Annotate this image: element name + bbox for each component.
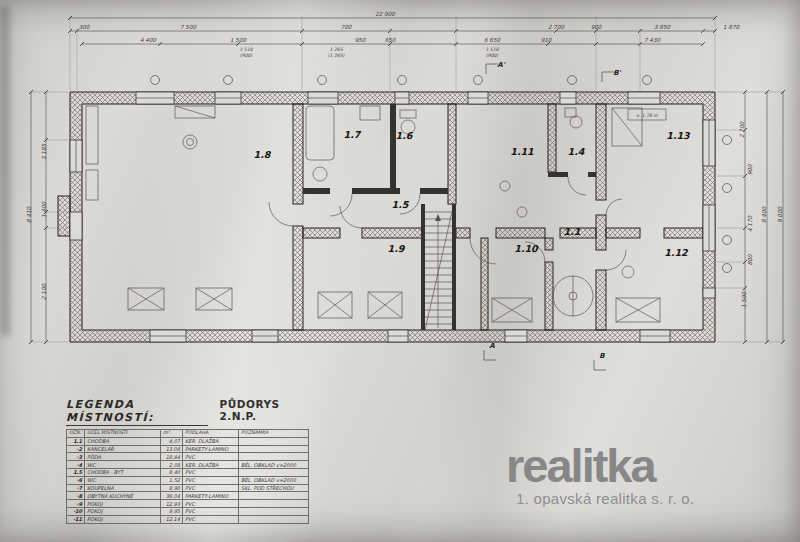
cell-ozn: ·9 <box>67 500 85 508</box>
cell-podlaha: PVC <box>183 484 239 492</box>
cell-pozn <box>239 500 309 508</box>
svg-text:650: 650 <box>385 37 396 43</box>
legend-row: 1.1CHODBA4,07KER. DLAŽBA <box>67 437 309 445</box>
cell-podlaha: PVC <box>183 515 239 523</box>
svg-text:7 430: 7 430 <box>644 37 660 43</box>
dim-overall-width: 22 900 <box>375 11 395 17</box>
cell-ucel: KOUPELNA <box>85 484 161 492</box>
svg-text:2 100: 2 100 <box>41 284 47 300</box>
svg-text:(900): (900) <box>486 53 499 58</box>
cell-ucel: POKOJ <box>85 507 161 515</box>
legend-row: ·8OBYTNÁ KUCHYNĚ36,04PARKETY-LAMINO <box>67 492 309 500</box>
washbasin <box>313 167 327 181</box>
cell-pozn <box>239 492 309 500</box>
svg-text:1 400: 1 400 <box>41 202 47 218</box>
cell-podlaha: PVC <box>183 500 239 508</box>
cell-podlaha: PVC <box>183 468 239 476</box>
legend-row: ·3PŮDA18,44PVC <box>67 453 309 461</box>
window <box>150 330 186 342</box>
legend-row: ·2KANCELÁŘ13,08PARKETY-LAMINO <box>67 445 309 453</box>
legend-title-row: LEGENDA MÍSTNOSTÍ: PŮDORYS 2.N.P. <box>66 398 308 426</box>
cell-m2: 9,95 <box>161 507 183 515</box>
cell-podlaha: PVC <box>183 476 239 484</box>
logo-tagline: 1. opavská realitka s. r. o. <box>516 490 694 507</box>
height-note: v. 1,78 m <box>636 113 658 118</box>
cell-ucel: CHODBA - BYT <box>85 468 161 476</box>
cell-m2: 12,93 <box>161 500 183 508</box>
svg-text:1 510: 1 510 <box>485 47 499 52</box>
cell-ozn: 1.1 <box>67 437 85 445</box>
legend-row: ·7KOUPELNA8,90PVCSKL. POD STŘECHOU <box>67 484 309 492</box>
cell-ozn: ·8 <box>67 492 85 500</box>
room-label-1-12: 1.12 <box>664 247 689 258</box>
cell-pozn: SKL. POD STŘECHOU <box>239 484 309 492</box>
svg-text:9 000: 9 000 <box>777 207 783 223</box>
dimension-texts: 22 900 300 7 500 700 2 700 900 3 850 1 8… <box>26 11 783 308</box>
position-marks <box>151 76 732 273</box>
window <box>136 92 174 104</box>
svg-text:950: 950 <box>355 37 366 43</box>
cell-ozn: ·3 <box>67 453 85 461</box>
legend-row: ·4WC2,08KER. DLAŽBABĚL. OBKLAD v=2000 <box>67 461 309 469</box>
cell-m2: 36,04 <box>161 492 183 500</box>
room-label-1-13: 1.13 <box>666 130 691 141</box>
window <box>560 92 576 104</box>
window <box>308 92 338 104</box>
staircase <box>425 212 452 330</box>
legend-row: ·10POKOJ9,95PVC <box>67 507 309 515</box>
cell-pozn <box>239 468 309 476</box>
cell-podlaha: PARKETY-LAMINO <box>183 492 239 500</box>
section-b-top: B' <box>613 69 621 77</box>
cell-ozn: ·7 <box>67 484 85 492</box>
cell-pozn <box>239 507 309 515</box>
cell-ozn: ·4 <box>67 461 85 469</box>
cell-ucel: POKOJ <box>85 515 161 523</box>
cell-ozn: 1.5 <box>67 468 85 476</box>
room-label-1-4: 1.4 <box>568 146 585 157</box>
floor-plan-drawing: 22 900 300 7 500 700 2 700 900 3 850 1 8… <box>0 0 800 392</box>
cell-ozn: ·2 <box>67 445 85 453</box>
col-podlaha: PODLAHA <box>183 430 239 438</box>
dimension-lines <box>29 16 785 344</box>
cell-m2: 2,08 <box>161 461 183 469</box>
cell-ozn: ·6 <box>67 476 85 484</box>
svg-text:3 185: 3 185 <box>41 144 47 160</box>
svg-text:1 500: 1 500 <box>230 37 246 43</box>
room-label-1-6: 1.6 <box>396 130 414 141</box>
window <box>640 330 670 342</box>
legend-row: ·11POKOJ12,14PVC <box>67 515 309 523</box>
cell-podlaha: PVC <box>183 507 239 515</box>
bathtub <box>306 106 334 160</box>
fixtures <box>86 106 660 322</box>
legend-header-row: OZN. ÚČEL MÍSTNOSTI m² PODLAHA POZNÁMKA <box>67 430 309 438</box>
svg-text:900: 900 <box>591 24 602 30</box>
svg-text:8 410: 8 410 <box>26 207 32 223</box>
cell-ucel: OBYTNÁ KUCHYNĚ <box>85 492 161 500</box>
cell-m2: 1,52 <box>161 476 183 484</box>
cell-podlaha: PARKETY-LAMINO <box>183 445 239 453</box>
cell-m2: 8,40 <box>161 468 183 476</box>
cell-m2: 4,07 <box>161 437 183 445</box>
col-ucel: ÚČEL MÍSTNOSTI <box>85 430 161 438</box>
fixture-mark <box>183 135 197 149</box>
room-label-1-1: 1.1 <box>564 226 581 237</box>
svg-text:300: 300 <box>79 24 90 30</box>
legend-title: LEGENDA MÍSTNOSTÍ: <box>66 398 208 426</box>
cell-podlaha: KER. DLAŽBA <box>183 461 239 469</box>
room-label-1-11: 1.11 <box>510 146 534 157</box>
svg-text:700: 700 <box>341 24 352 30</box>
cell-pozn <box>239 437 309 445</box>
svg-text:2 700: 2 700 <box>548 24 564 30</box>
cell-pozn: BĚL. OBKLAD v=2000 <box>239 461 309 469</box>
legend: LEGENDA MÍSTNOSTÍ: PŮDORYS 2.N.P. OZN. Ú… <box>66 398 308 524</box>
legend-table: OZN. ÚČEL MÍSTNOSTI m² PODLAHA POZNÁMKA … <box>66 429 309 524</box>
svg-text:900: 900 <box>747 164 753 175</box>
room-label-1-5: 1.5 <box>392 199 410 210</box>
entry-bay-wall <box>58 196 70 236</box>
stair-direction-arrow <box>435 214 441 221</box>
room-label-1-7: 1.7 <box>344 129 362 140</box>
wc-bowl <box>570 116 582 128</box>
cell-podlaha: KER. DLAŽBA <box>183 437 239 445</box>
window <box>505 330 527 342</box>
cell-podlaha: PVC <box>183 453 239 461</box>
svg-text:1 870: 1 870 <box>723 24 739 30</box>
cell-ucel: PŮDA <box>85 453 161 461</box>
svg-text:6 650: 6 650 <box>484 37 500 43</box>
window <box>468 92 488 104</box>
col-m2: m² <box>161 430 183 438</box>
section-b-bottom: B <box>599 352 605 360</box>
svg-text:2 700: 2 700 <box>739 122 745 138</box>
svg-text:800: 800 <box>747 254 753 265</box>
scanned-floorplan-page: 22 900 300 7 500 700 2 700 900 3 850 1 8… <box>0 0 800 542</box>
entry-door <box>70 212 82 240</box>
cell-ucel: POKOJ <box>85 500 161 508</box>
room-label-1-8: 1.8 <box>254 149 272 160</box>
room-label-1-9: 1.9 <box>388 243 406 254</box>
svg-text:(1 265): (1 265) <box>328 53 345 58</box>
cell-m2: 18,44 <box>161 453 183 461</box>
section-a-bottom: A <box>489 342 495 350</box>
section-a-top: A' <box>497 61 505 69</box>
window <box>395 92 409 104</box>
realitka-logo: realitka 1. opavská realitka s. r. o. <box>506 442 694 507</box>
exterior-walls <box>58 92 715 342</box>
svg-text:1 510: 1 510 <box>239 47 253 52</box>
cell-ucel: WC <box>85 476 161 484</box>
col-poznamka: POZNÁMKA <box>239 430 309 438</box>
cell-m2: 8,90 <box>161 484 183 492</box>
plan-title: PŮDORYS 2.N.P. <box>220 398 308 422</box>
cell-pozn <box>239 445 309 453</box>
room-label-1-10: 1.10 <box>514 243 539 254</box>
cell-m2: 12,14 <box>161 515 183 523</box>
cell-ucel: CHODBA <box>85 437 161 445</box>
cell-pozn: BĚL. OBKLAD v=2000 <box>239 476 309 484</box>
window <box>70 140 82 172</box>
cell-pozn <box>239 515 309 523</box>
window <box>703 205 715 251</box>
cell-ozn: ·10 <box>67 507 85 515</box>
svg-text:4 400: 4 400 <box>140 37 156 43</box>
window <box>628 92 660 104</box>
window <box>215 92 241 104</box>
cell-m2: 13,08 <box>161 445 183 453</box>
svg-text:1 265: 1 265 <box>329 47 343 52</box>
cell-ozn: ·11 <box>67 515 85 523</box>
legend-row: 1.5CHODBA - BYT8,40PVC <box>67 468 309 476</box>
window <box>703 120 715 166</box>
svg-text:910: 910 <box>541 37 552 43</box>
kitchen-counter <box>86 106 98 164</box>
svg-text:1 500: 1 500 <box>741 292 747 308</box>
legend-row: ·6WC1,52PVCBĚL. OBKLAD v=2000 <box>67 476 309 484</box>
legend-row: ·9POKOJ12,93PVC <box>67 500 309 508</box>
cell-ucel: WC <box>85 461 161 469</box>
logo-wordmark: realitka <box>506 442 694 489</box>
cell-pozn <box>239 453 309 461</box>
cell-ucel: KANCELÁŘ <box>85 445 161 453</box>
svg-text:4 170: 4 170 <box>747 216 753 232</box>
window <box>388 330 408 342</box>
svg-text:8 400: 8 400 <box>761 207 767 223</box>
svg-text:3 850: 3 850 <box>654 24 670 30</box>
window <box>703 288 715 298</box>
col-ozn: OZN. <box>67 430 85 438</box>
window <box>252 330 278 342</box>
svg-text:7 500: 7 500 <box>180 24 196 30</box>
svg-text:(900): (900) <box>240 53 253 58</box>
